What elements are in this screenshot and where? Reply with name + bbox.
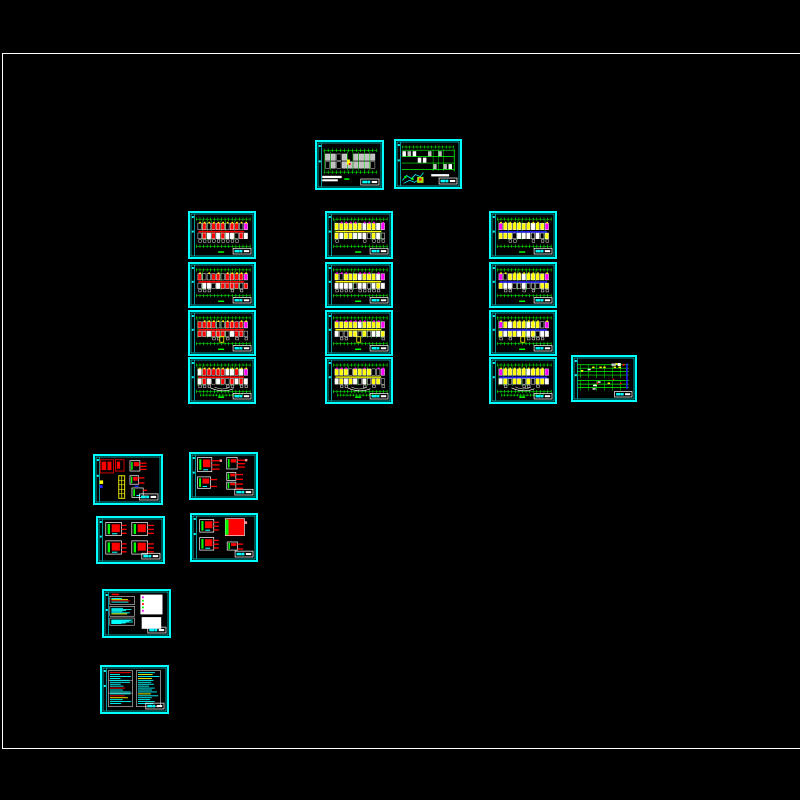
title-block <box>361 179 379 185</box>
sheet-distribution-detail-sheet-1[interactable] <box>93 454 163 505</box>
lighting-plan-floor-1-drawing <box>190 213 254 257</box>
linework <box>105 592 168 635</box>
distribution-detail-sheet-3-drawing <box>98 518 163 562</box>
sheet-inner-border <box>397 142 459 186</box>
linework <box>328 360 390 401</box>
title-block <box>370 298 388 303</box>
sheet-design-notes-sheet[interactable] <box>100 665 169 714</box>
linework <box>318 143 381 187</box>
linework <box>191 360 253 401</box>
power-plan-floor-4-drawing <box>327 359 391 402</box>
distribution-detail-sheet-2-drawing <box>191 454 256 498</box>
power-plan-floor-2-drawing <box>327 264 391 306</box>
sheet-weak-current-plan-floor-1[interactable] <box>489 211 557 259</box>
weak-current-plan-floor-2-drawing <box>491 264 555 306</box>
title-block <box>235 489 253 495</box>
linework <box>492 360 554 401</box>
title-block <box>439 178 457 184</box>
sheet-power-plan-floor-4[interactable] <box>325 357 393 404</box>
cad-canvas <box>0 0 800 800</box>
weak-current-plan-floor-4-drawing <box>491 359 555 402</box>
sheet-weak-current-plan-floor-3[interactable] <box>489 310 557 356</box>
title-block <box>140 494 158 500</box>
site-plan-sheet-drawing <box>317 142 382 188</box>
linework <box>103 668 166 711</box>
legend-notes-sheet-drawing <box>104 591 169 636</box>
title-block <box>370 346 388 351</box>
title-block <box>534 346 552 351</box>
power-plan-floor-3-drawing <box>327 312 391 354</box>
title-block <box>233 346 251 351</box>
lighting-plan-floor-2-drawing <box>190 264 254 306</box>
roof-plan-sheet-drawing <box>396 141 460 187</box>
riser-diagram-sheet-drawing <box>573 357 635 400</box>
linework <box>492 265 554 305</box>
linework <box>99 519 162 561</box>
linework <box>328 265 390 305</box>
design-notes-sheet-drawing <box>102 667 167 712</box>
linework <box>192 455 255 497</box>
linework <box>328 214 390 256</box>
sheet-riser-diagram-sheet[interactable] <box>571 355 637 402</box>
distribution-detail-sheet-1-drawing <box>95 456 161 503</box>
sheet-power-plan-floor-2[interactable] <box>325 262 393 308</box>
lighting-plan-floor-4-drawing <box>190 359 254 402</box>
title-block <box>534 248 552 254</box>
sheet-weak-current-plan-floor-4[interactable] <box>489 357 557 404</box>
sheet-distribution-detail-sheet-2[interactable] <box>189 452 258 500</box>
sheet-site-plan-sheet[interactable] <box>315 140 384 190</box>
weak-current-plan-floor-1-drawing <box>491 213 555 257</box>
sheet-roof-plan-sheet[interactable] <box>394 139 462 189</box>
linework <box>191 265 253 305</box>
weak-current-plan-floor-3-drawing <box>491 312 555 354</box>
sheet-lighting-plan-floor-1[interactable] <box>188 211 256 259</box>
sheet-distribution-detail-sheet-4[interactable] <box>190 513 258 562</box>
title-block <box>235 551 253 557</box>
distribution-detail-sheet-4-drawing <box>192 515 256 560</box>
sheet-lighting-plan-floor-3[interactable] <box>188 310 256 356</box>
sheet-distribution-detail-sheet-3[interactable] <box>96 516 165 564</box>
title-block <box>233 248 251 254</box>
linework <box>574 358 634 399</box>
linework <box>191 214 253 256</box>
power-plan-floor-1-drawing <box>327 213 391 257</box>
title-block <box>534 298 552 303</box>
sheet-power-plan-floor-1[interactable] <box>325 211 393 259</box>
title-block <box>370 248 388 254</box>
sheet-weak-current-plan-floor-2[interactable] <box>489 262 557 308</box>
sheet-inner-border <box>574 358 634 399</box>
linework <box>96 457 160 502</box>
sheet-power-plan-floor-3[interactable] <box>325 310 393 356</box>
title-block <box>146 703 164 709</box>
sheet-lighting-plan-floor-4[interactable] <box>188 357 256 404</box>
linework <box>397 142 459 186</box>
linework <box>328 313 390 353</box>
linework <box>191 313 253 353</box>
lighting-plan-floor-3-drawing <box>190 312 254 354</box>
title-block <box>615 391 632 397</box>
linework <box>492 214 554 256</box>
linework <box>492 313 554 353</box>
sheet-lighting-plan-floor-2[interactable] <box>188 262 256 308</box>
title-block <box>233 298 251 303</box>
sheet-legend-notes-sheet[interactable] <box>102 589 171 638</box>
linework <box>193 516 255 559</box>
